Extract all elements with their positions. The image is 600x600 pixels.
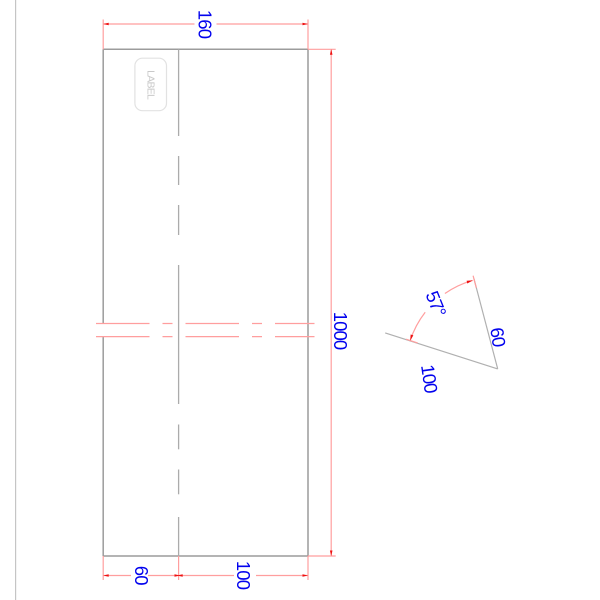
svg-text:60: 60 <box>486 326 509 348</box>
svg-text:LABEL: LABEL <box>145 70 157 100</box>
svg-text:1000: 1000 <box>330 312 351 350</box>
svg-text:100: 100 <box>233 561 254 590</box>
svg-text:60: 60 <box>131 566 152 585</box>
svg-text:100: 100 <box>417 363 442 394</box>
svg-text:160: 160 <box>195 10 216 39</box>
